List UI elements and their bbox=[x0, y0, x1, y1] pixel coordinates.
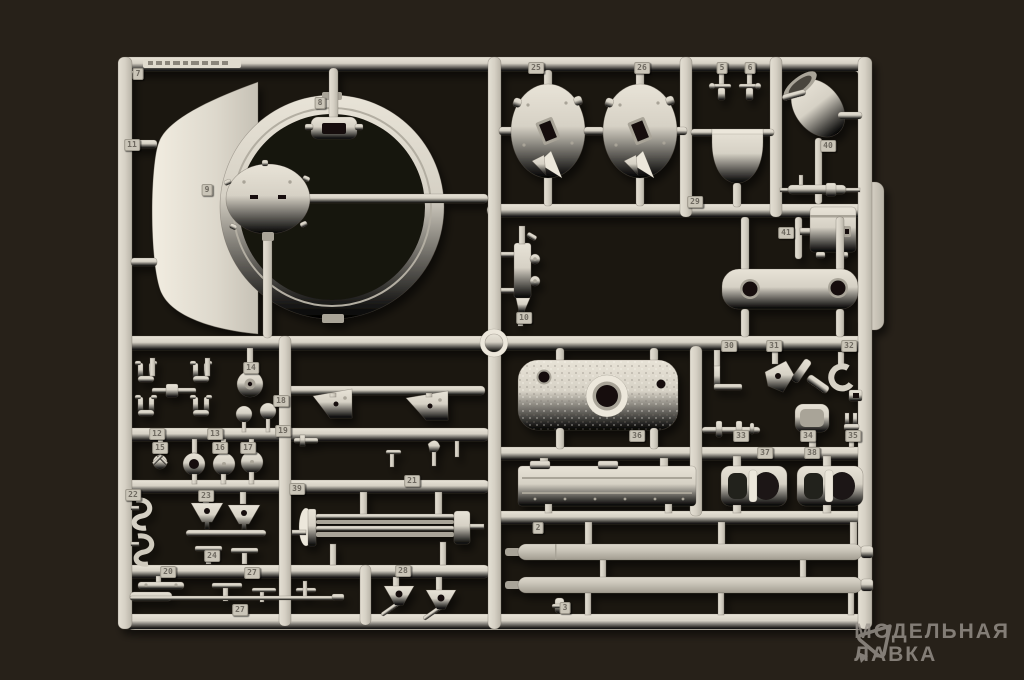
photo-of-model-kit-sprue: 7118925265640294110141213151617181920212… bbox=[0, 0, 1024, 680]
beam-part bbox=[518, 458, 696, 513]
hatch-frame-part bbox=[305, 117, 363, 139]
cursor-triangle-logo-icon bbox=[854, 620, 898, 666]
sprue-illustration bbox=[0, 0, 1024, 680]
runner-hub bbox=[480, 329, 508, 357]
watermark: МОДЕЛЬНАЯ ЛАВКА bbox=[854, 620, 1010, 666]
mold-marking bbox=[143, 59, 241, 68]
